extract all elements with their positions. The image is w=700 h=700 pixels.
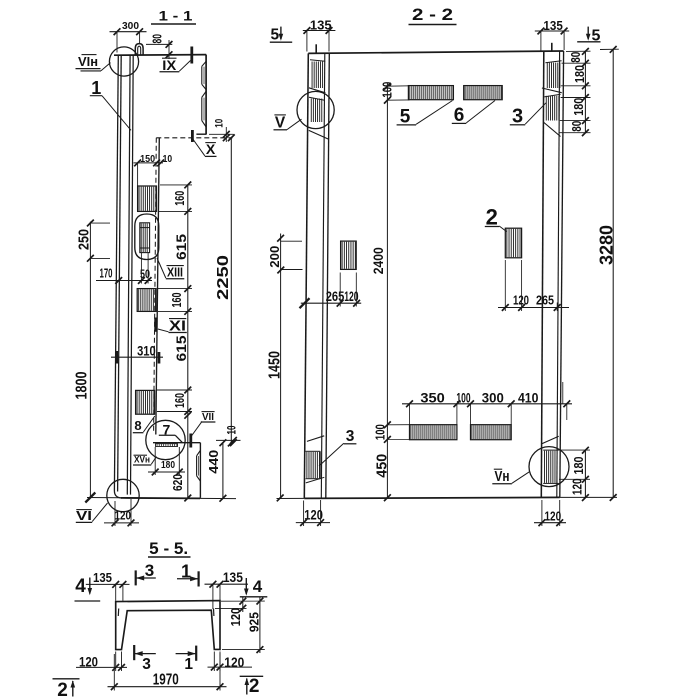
svg-text:2: 2 [249,676,260,697]
svg-text:Vн: Vн [495,469,510,485]
svg-text:VII: VII [202,412,214,423]
svg-text:135: 135 [223,569,243,585]
svg-text:1: 1 [91,78,101,98]
svg-text:2: 2 [486,205,498,230]
svg-text:450: 450 [373,454,390,478]
svg-text:3: 3 [145,561,154,580]
svg-text:5: 5 [270,26,279,43]
svg-text:180: 180 [571,457,586,475]
svg-text:XIII: XIII [167,265,183,279]
svg-text:10: 10 [227,426,239,435]
svg-text:80: 80 [568,52,583,63]
svg-text:1450: 1450 [267,351,284,379]
svg-text:300: 300 [482,389,504,405]
svg-text:615: 615 [173,335,189,361]
svg-text:160: 160 [173,191,187,206]
svg-text:350: 350 [420,389,445,405]
svg-text:3: 3 [346,428,355,445]
svg-text:VI: VI [76,509,92,523]
svg-text:5 - 5.: 5 - 5. [149,539,188,558]
svg-text:180: 180 [571,98,586,116]
svg-text:170: 170 [100,266,113,281]
svg-text:4: 4 [253,577,263,596]
svg-text:80: 80 [150,34,165,44]
svg-text:8: 8 [134,418,141,433]
svg-text:250: 250 [77,229,93,250]
svg-text:300: 300 [122,20,139,32]
svg-text:180: 180 [161,459,175,471]
svg-text:120: 120 [513,293,529,308]
svg-text:4: 4 [75,576,86,597]
svg-text:200: 200 [267,246,282,268]
svg-text:IX: IX [162,58,176,73]
svg-text:120: 120 [571,479,585,496]
svg-text:3: 3 [512,105,523,127]
svg-text:2 - 2: 2 - 2 [412,5,453,24]
svg-text:160: 160 [170,292,184,307]
svg-text:1: 1 [181,562,191,582]
svg-text:7: 7 [163,421,171,437]
svg-text:VIн: VIн [78,55,98,69]
svg-text:2400: 2400 [370,247,386,274]
svg-text:410: 410 [518,389,539,405]
svg-text:160: 160 [173,393,187,408]
svg-text:120: 120 [544,508,561,523]
svg-text:620: 620 [171,474,185,491]
svg-text:10: 10 [214,119,226,128]
svg-text:1 - 1: 1 - 1 [159,7,193,23]
svg-text:135: 135 [93,570,112,585]
svg-text:XVн: XVн [134,455,150,466]
svg-text:180: 180 [572,65,587,83]
svg-text:1800: 1800 [74,371,91,399]
svg-text:10: 10 [163,153,173,165]
svg-text:1970: 1970 [153,672,179,689]
svg-text:2250: 2250 [215,255,232,300]
svg-text:310: 310 [137,344,156,359]
svg-text:V: V [275,115,286,132]
svg-text:X: X [206,141,216,157]
svg-text:80: 80 [569,121,584,132]
svg-text:3: 3 [142,656,151,673]
svg-text:2: 2 [57,680,68,700]
svg-text:615: 615 [173,234,189,260]
svg-text:100: 100 [373,424,388,440]
svg-text:265: 265 [536,293,554,308]
svg-text:1: 1 [184,656,193,673]
svg-text:440: 440 [207,450,221,474]
